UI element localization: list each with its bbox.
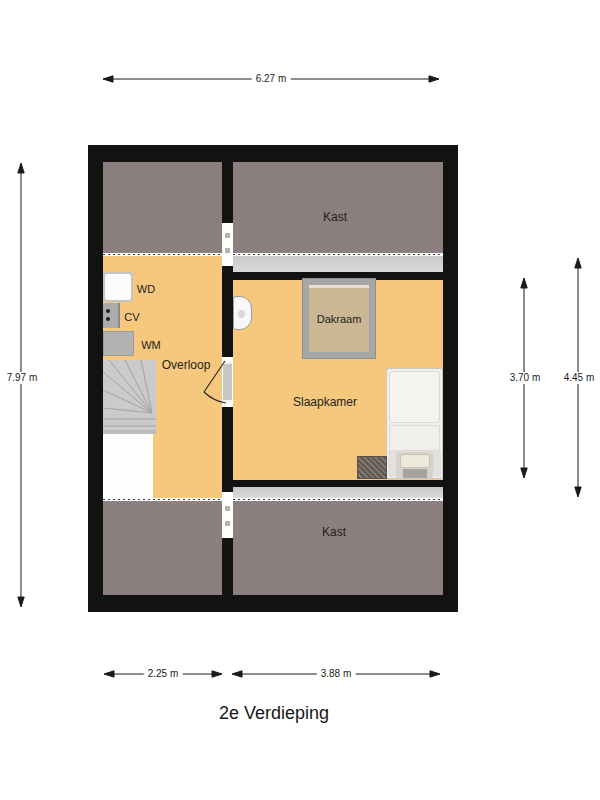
dimension-top: 6.27 m xyxy=(252,73,291,85)
washing-machine-unit xyxy=(103,331,134,356)
kast-top-floor xyxy=(233,162,443,255)
dimension-left: 7.97 m xyxy=(3,372,42,384)
bed-duvet xyxy=(389,371,440,423)
floor-title: 2e Verdieping xyxy=(219,703,329,724)
dryer-label: WD xyxy=(137,283,155,295)
floor-plan: WD CV WM Overloop Dakraam Kast Slaapkame… xyxy=(88,145,458,612)
stairwell-void xyxy=(103,434,153,498)
floor-plan-page: 6.27 m 7.97 m 3.70 m 4.45 m 2.25 m 3.88 … xyxy=(0,0,600,800)
wall-opening-bottom xyxy=(222,492,233,538)
dimension-bottom-right: 3.88 m xyxy=(317,668,356,680)
storage-area-top-left xyxy=(103,162,222,255)
room-label-slaapkamer: Slaapkamer xyxy=(293,395,357,409)
storage-area-bottom-left xyxy=(103,501,222,595)
threshold-band-bottom xyxy=(233,487,443,498)
dresser xyxy=(357,456,387,479)
bed-shadow xyxy=(403,469,427,478)
dimension-bottom-left: 2.25 m xyxy=(144,668,183,680)
bed-mid-section xyxy=(389,425,440,451)
dimension-right-inner: 3.70 m xyxy=(506,372,545,384)
skylight-label: Dakraam xyxy=(317,313,362,325)
wall-opening-top xyxy=(222,223,233,266)
bed xyxy=(386,368,443,479)
sink xyxy=(233,296,252,330)
skylight: Dakraam xyxy=(303,279,375,358)
kast-bottom-floor xyxy=(233,501,443,595)
door-leaf xyxy=(223,362,232,402)
boiler-label: CV xyxy=(124,311,139,323)
dimension-right-outer: 4.45 m xyxy=(560,372,599,384)
washing-machine-label: WM xyxy=(141,339,161,351)
threshold-band-top xyxy=(233,256,443,272)
bed-pillow xyxy=(400,454,430,468)
room-label-overloop: Overloop xyxy=(162,358,211,372)
room-label-kast-bottom: Kast xyxy=(322,525,346,539)
dryer-unit xyxy=(103,272,133,302)
room-label-kast-top: Kast xyxy=(323,210,347,224)
staircase xyxy=(103,360,156,434)
boiler-unit xyxy=(103,303,120,328)
